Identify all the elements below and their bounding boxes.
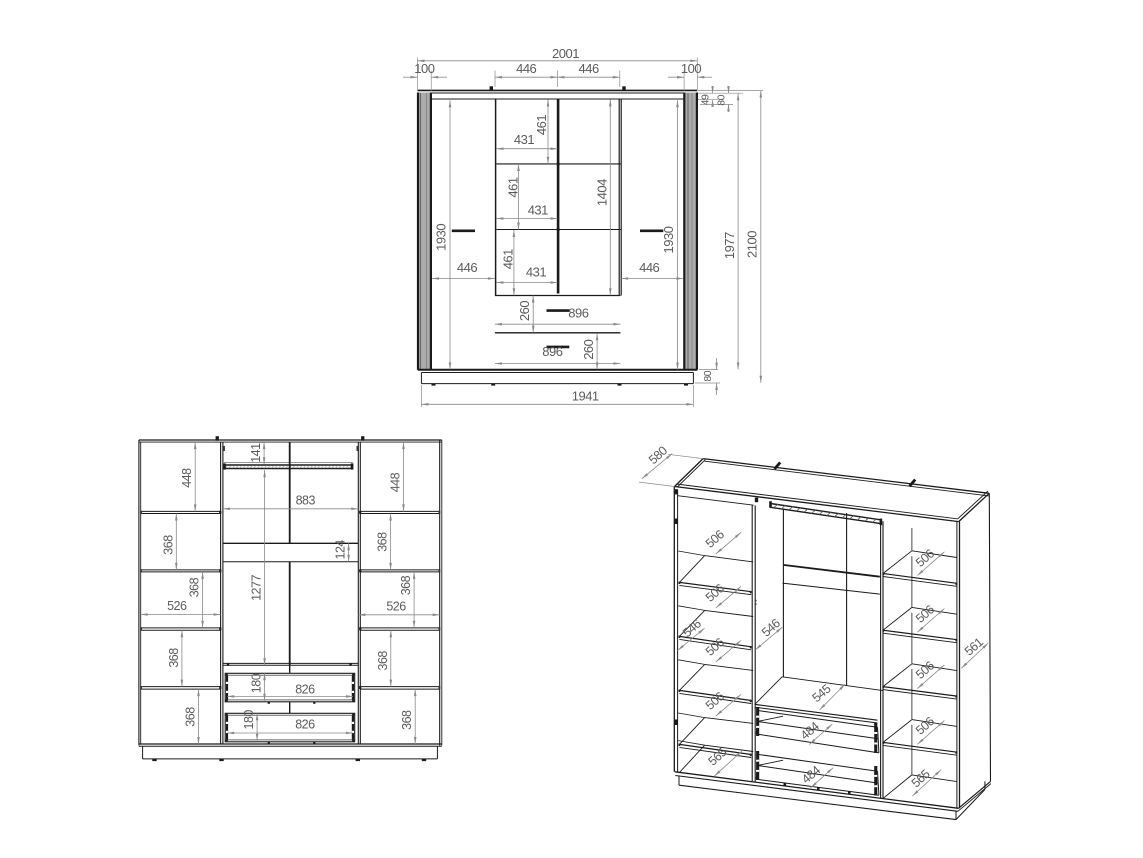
svg-text:368: 368 <box>376 532 390 552</box>
svg-text:368: 368 <box>376 651 390 671</box>
svg-text:446: 446 <box>457 260 477 275</box>
svg-text:431: 431 <box>514 132 534 147</box>
svg-text:1404: 1404 <box>595 179 610 206</box>
svg-text:124: 124 <box>333 540 347 560</box>
svg-text:100: 100 <box>681 61 701 76</box>
svg-text:1930: 1930 <box>661 226 676 253</box>
svg-text:49: 49 <box>700 94 712 105</box>
svg-text:826: 826 <box>295 682 315 696</box>
svg-text:260: 260 <box>581 339 596 359</box>
svg-text:1977: 1977 <box>722 232 737 259</box>
svg-text:1941: 1941 <box>572 388 599 403</box>
svg-text:1277: 1277 <box>249 575 263 601</box>
svg-text:80: 80 <box>702 370 714 381</box>
svg-text:446: 446 <box>639 260 659 275</box>
svg-text:368: 368 <box>161 535 175 555</box>
svg-text:431: 431 <box>528 202 548 217</box>
svg-text:461: 461 <box>501 249 516 269</box>
svg-text:368: 368 <box>400 710 414 730</box>
svg-text:2100: 2100 <box>745 231 760 258</box>
svg-text:448: 448 <box>389 472 403 492</box>
svg-text:141: 141 <box>249 443 263 463</box>
svg-text:896: 896 <box>542 344 562 359</box>
svg-text:368: 368 <box>167 648 181 668</box>
svg-text:448: 448 <box>180 468 194 488</box>
svg-text:446: 446 <box>516 61 536 76</box>
svg-text:446: 446 <box>578 61 598 76</box>
svg-text:2001: 2001 <box>552 46 579 61</box>
svg-text:80: 80 <box>716 94 728 105</box>
svg-text:526: 526 <box>386 599 406 613</box>
svg-text:526: 526 <box>167 599 187 613</box>
svg-text:368: 368 <box>399 575 413 595</box>
svg-text:896: 896 <box>568 306 588 321</box>
svg-text:461: 461 <box>505 177 520 197</box>
svg-text:260: 260 <box>517 301 532 321</box>
svg-text:431: 431 <box>526 265 546 280</box>
svg-text:368: 368 <box>188 577 202 597</box>
svg-text:180: 180 <box>242 710 256 730</box>
svg-text:883: 883 <box>296 493 316 507</box>
svg-text:461: 461 <box>534 115 549 135</box>
svg-text:368: 368 <box>184 707 198 727</box>
svg-text:180: 180 <box>249 673 263 693</box>
svg-text:1930: 1930 <box>433 224 448 251</box>
svg-text:826: 826 <box>295 717 315 731</box>
svg-text:100: 100 <box>414 61 434 76</box>
